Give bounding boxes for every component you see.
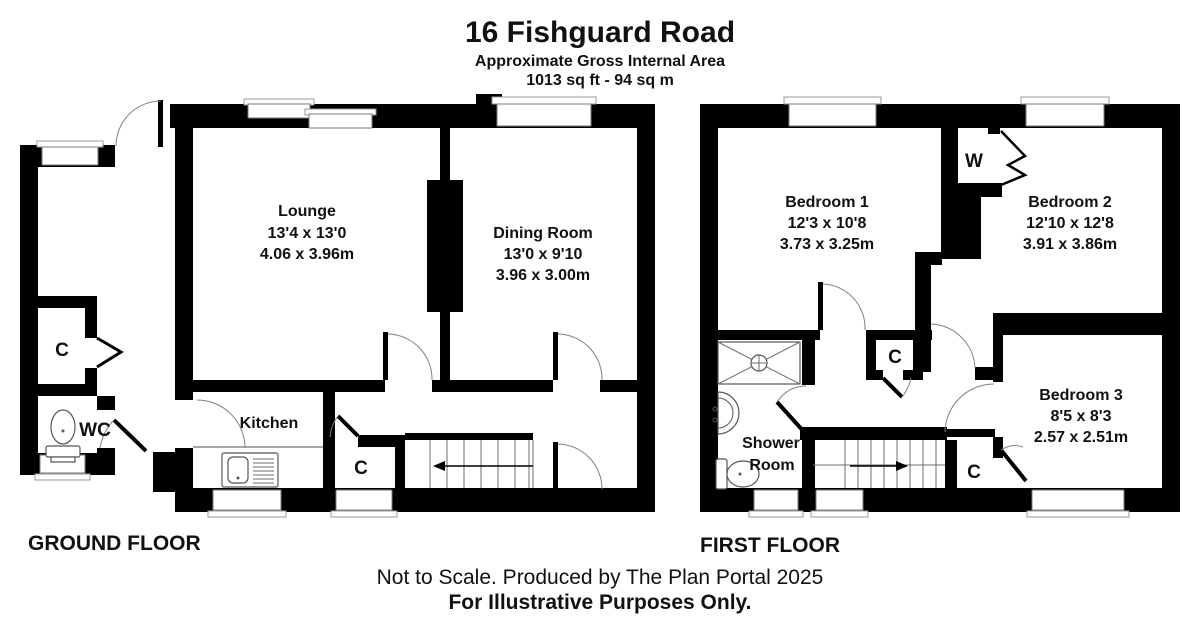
entrance-closet-label: C <box>55 340 69 361</box>
bedroom1-imperial: 12'3 x 10'8 <box>788 215 867 232</box>
lounge-window-2 <box>309 114 372 128</box>
bedroom3-label: Bedroom 3 <box>1039 387 1123 404</box>
dining-imperial: 13'0 x 9'10 <box>504 246 583 263</box>
bedroom3-door <box>945 384 995 437</box>
hall-closet-door-ff <box>883 378 911 397</box>
ground-floor-doors <box>97 100 602 490</box>
lounge-door <box>383 332 432 380</box>
wardrobe-label: W <box>965 151 983 172</box>
bedroom2-door <box>926 322 975 372</box>
hall-closet-label: C <box>354 458 368 479</box>
landing-window <box>816 490 863 510</box>
dining-door <box>553 332 602 380</box>
floorplan-canvas: 16 Fishguard Road Approximate Gross Inte… <box>0 0 1200 637</box>
footer-illustrative: For Illustrative Purposes Only. <box>448 591 751 614</box>
first-floor-title: FIRST FLOOR <box>700 534 840 557</box>
header: 16 Fishguard Road Approximate Gross Inte… <box>465 16 735 89</box>
stairs-closet-label-ff: C <box>967 462 981 483</box>
bedroom2-metric: 3.91 x 3.86m <box>1023 236 1117 253</box>
airing-closet-door <box>1001 446 1026 481</box>
header-area: 1013 sq ft - 94 sq m <box>526 72 674 89</box>
lounge-label: Lounge <box>278 203 336 220</box>
entrance-closet-door <box>97 338 121 367</box>
staircase-first <box>813 440 945 488</box>
hall-closet-window <box>336 490 392 510</box>
kitchen-fittings <box>193 447 323 487</box>
shower-room-label-1: Shower <box>742 435 800 452</box>
toilet-icon-ground <box>46 410 80 462</box>
staircase-ground <box>430 440 533 488</box>
kitchen-door <box>197 400 245 448</box>
shower-room-door <box>777 386 806 434</box>
lounge-metric: 4.06 x 3.96m <box>260 246 354 263</box>
bedroom1-metric: 3.73 x 3.25m <box>780 236 874 253</box>
dining-label: Dining Room <box>493 225 593 242</box>
bedroom1-label: Bedroom 1 <box>785 194 869 211</box>
bedroom2-imperial: 12'10 x 12'8 <box>1026 215 1114 232</box>
bedroom3-window <box>1032 490 1124 510</box>
stairs-arrow-ff <box>896 461 908 471</box>
kitchen-label: Kitchen <box>240 415 299 432</box>
wardrobe-bifold-door <box>1001 131 1025 185</box>
dining-metric: 3.96 x 3.00m <box>496 267 590 284</box>
stairs-arrow <box>433 461 445 471</box>
bedroom3-metric: 2.57 x 2.51m <box>1034 429 1128 446</box>
chimney-breast <box>427 180 463 312</box>
shower-room-label-2: Room <box>749 457 794 474</box>
ground-floor-walls <box>20 94 655 512</box>
dining-window <box>497 104 591 126</box>
hall-closet-label-ff: C <box>888 347 902 368</box>
header-subtitle: Approximate Gross Internal Area <box>475 53 725 70</box>
wc-label: WC <box>79 420 111 441</box>
bedroom1-door <box>818 282 865 330</box>
footer: Not to Scale. Produced by The Plan Porta… <box>377 566 824 614</box>
sink-unit-icon <box>222 453 278 487</box>
shower-tray-icon <box>718 342 800 384</box>
bedroom3-imperial: 8'5 x 8'3 <box>1051 408 1112 425</box>
ground-floor-title: GROUND FLOOR <box>28 532 201 555</box>
ground-floor-plan: Lounge 13'4 x 13'0 4.06 x 3.96m Dining R… <box>20 94 655 555</box>
front-door <box>116 100 163 147</box>
porch-window <box>42 147 98 165</box>
footer-disclaimer: Not to Scale. Produced by The Plan Porta… <box>377 566 824 589</box>
shower-room-window <box>754 490 798 510</box>
lounge-imperial: 13'4 x 13'0 <box>268 225 347 242</box>
bedroom1-window <box>789 104 876 126</box>
bedroom2-label: Bedroom 2 <box>1028 194 1112 211</box>
lounge-window <box>248 104 310 118</box>
ground-floor-windows <box>35 97 596 517</box>
back-door <box>553 442 602 490</box>
bedroom2-window <box>1026 104 1104 126</box>
first-floor-plan: Bedroom 1 12'3 x 10'8 3.73 x 3.25m Bedro… <box>700 97 1180 557</box>
page-title: 16 Fishguard Road <box>465 16 735 49</box>
kitchen-window <box>213 490 281 510</box>
